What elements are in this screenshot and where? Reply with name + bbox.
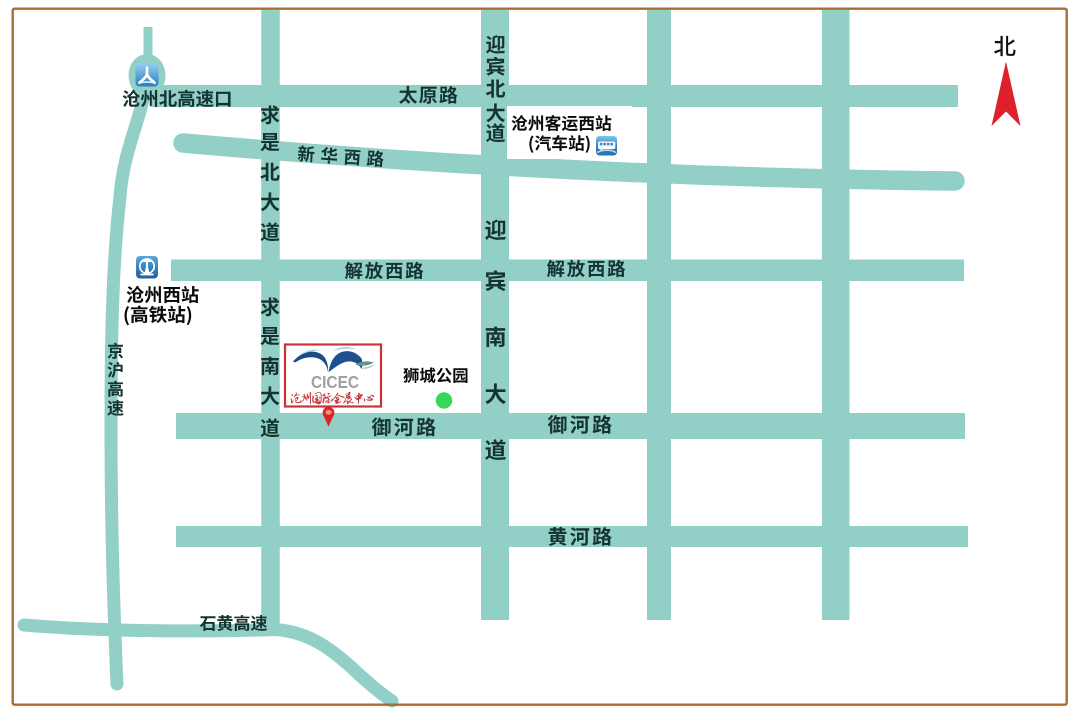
svg-text:CICEC: CICEC <box>311 372 359 392</box>
